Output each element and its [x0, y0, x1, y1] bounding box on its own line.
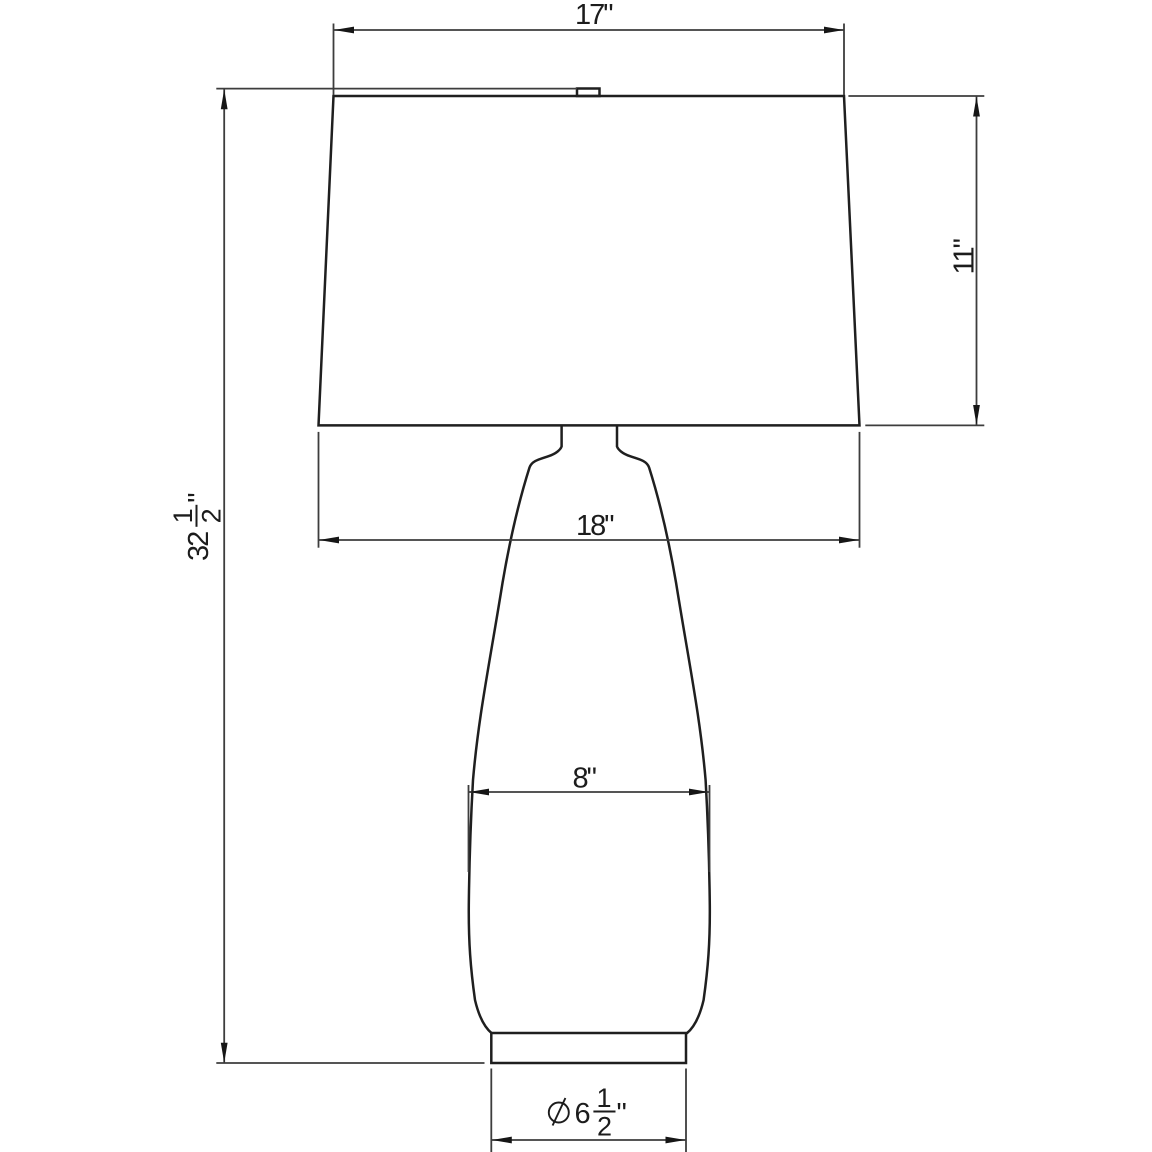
svg-text:11": 11" [949, 238, 981, 274]
svg-text:1: 1 [596, 1083, 611, 1113]
svg-text:1: 1 [168, 508, 198, 523]
svg-text:2: 2 [597, 1112, 612, 1142]
svg-text:18": 18" [576, 510, 614, 542]
svg-text:32: 32 [183, 532, 215, 561]
svg-text:6: 6 [575, 1098, 590, 1130]
svg-text:8": 8" [573, 763, 597, 795]
svg-text:17": 17" [575, 0, 613, 31]
svg-text:2: 2 [197, 508, 227, 523]
